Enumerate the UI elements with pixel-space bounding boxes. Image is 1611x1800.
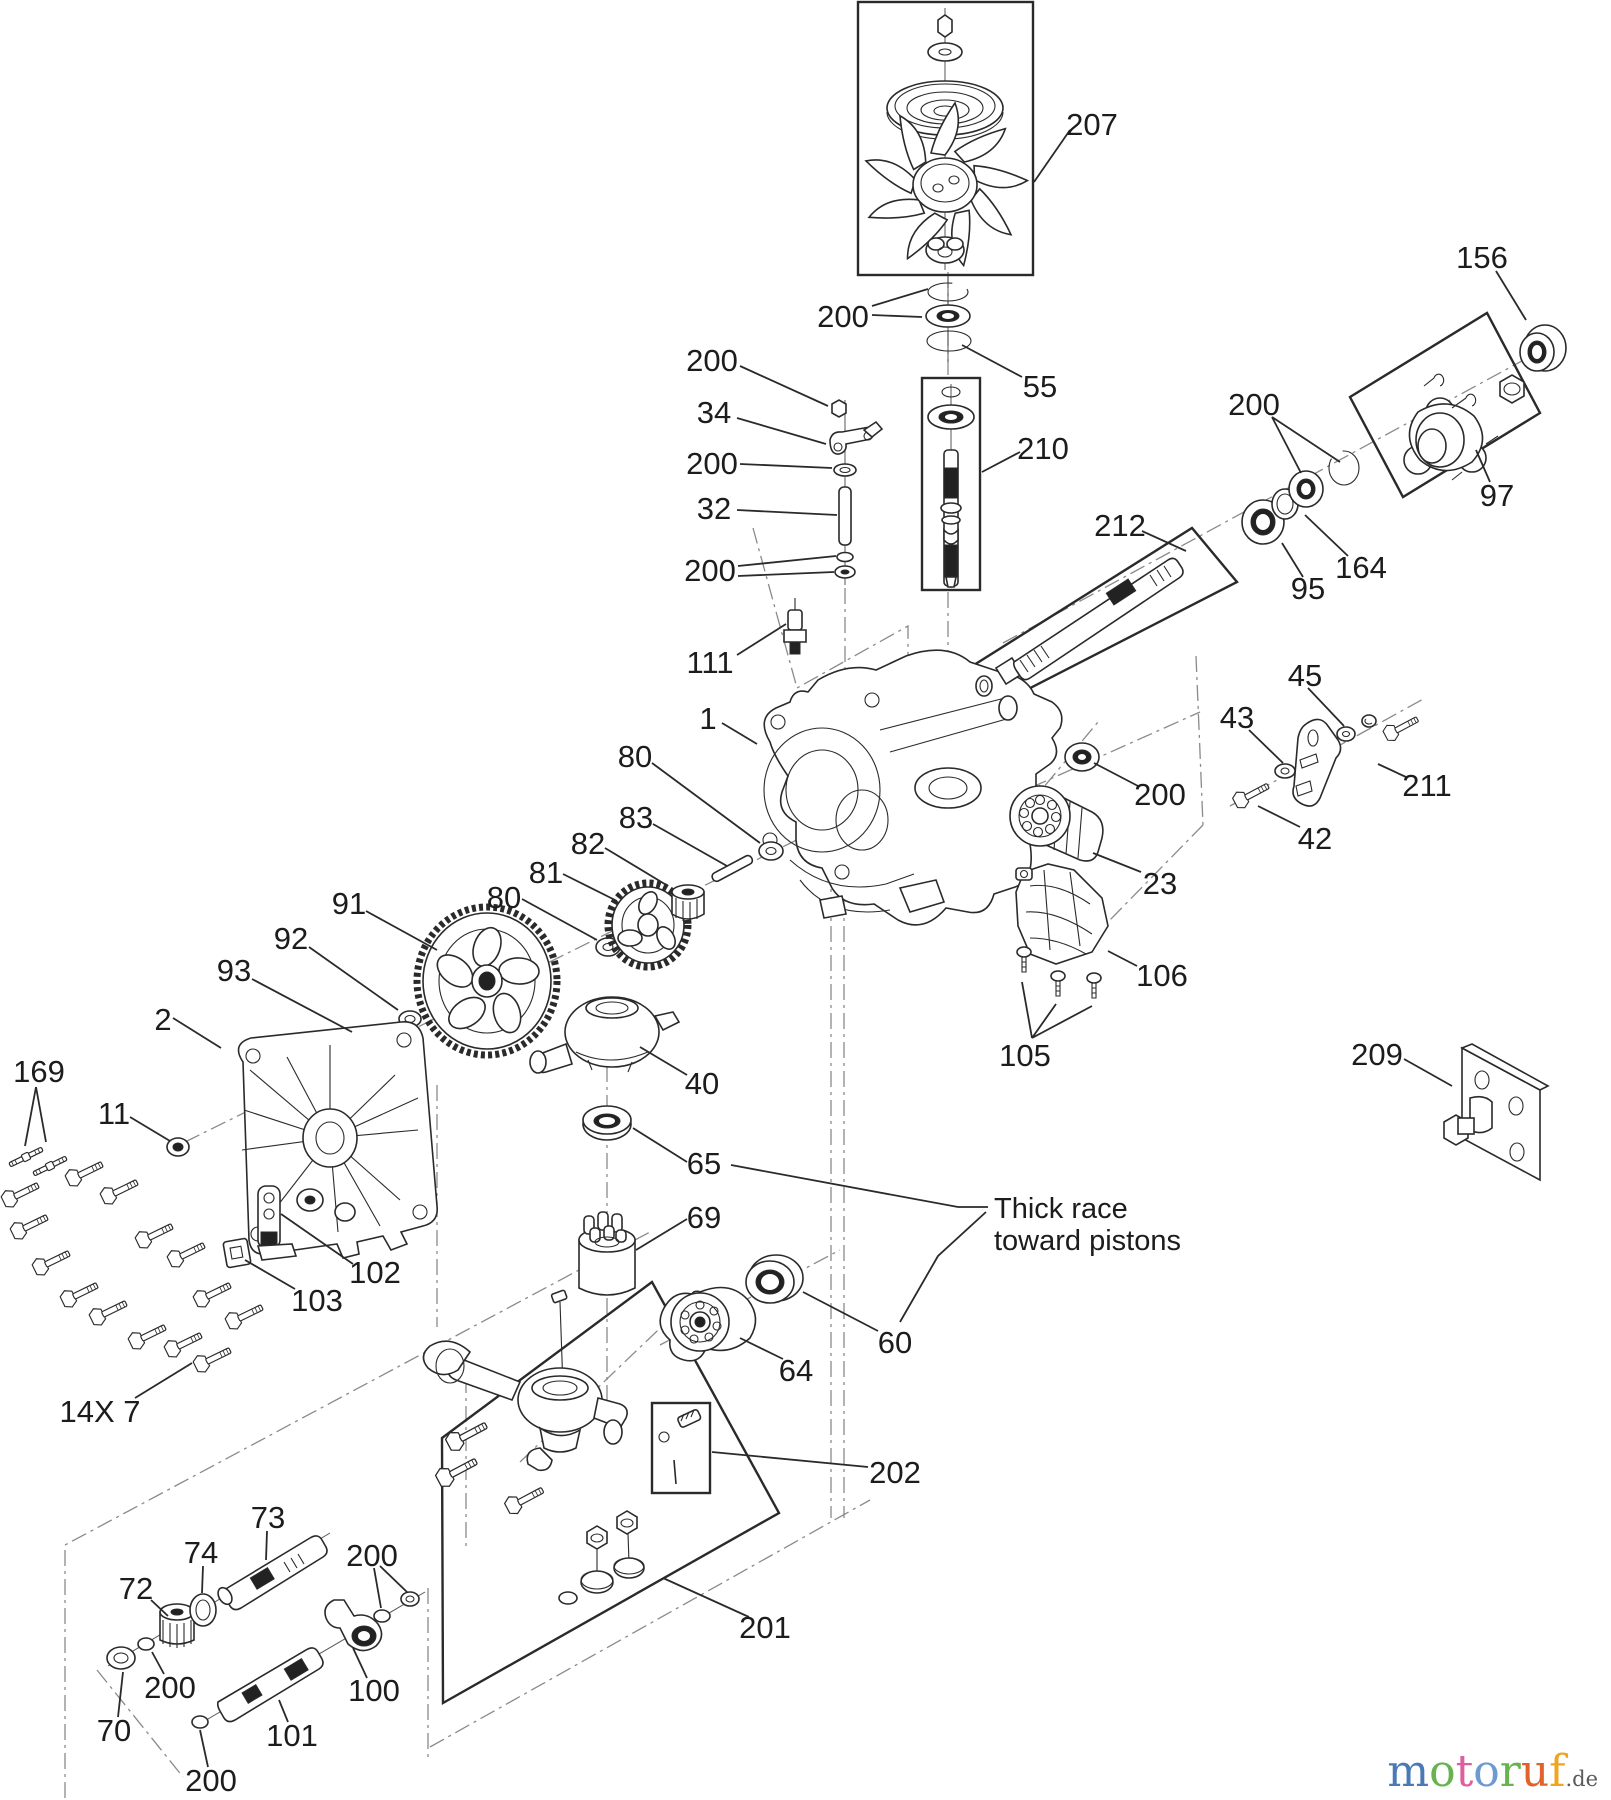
logo-letter: r — [1500, 1746, 1522, 1797]
callout-73: 73 — [251, 1500, 285, 1535]
shift-control-parts — [830, 400, 882, 578]
thrust-race-65 — [583, 1106, 631, 1140]
clip-103 — [223, 1238, 251, 1268]
pin-32 — [839, 487, 851, 545]
bearing-156 — [1520, 325, 1566, 371]
thick-race-60 — [746, 1255, 803, 1303]
callout-23: 23 — [1143, 866, 1177, 901]
callout-200-fan: 200 — [817, 299, 869, 334]
callout-93: 93 — [217, 953, 251, 988]
exploded-parts-diagram: 207 200 55 210 200 34 200 32 200 111 1 1… — [0, 0, 1611, 1800]
shift-fork-100 — [325, 1600, 382, 1651]
washer-80-right — [759, 842, 783, 860]
callout-200-seal: 200 — [1134, 777, 1186, 812]
callout-labels: 207 200 55 210 200 34 200 32 200 111 1 1… — [13, 107, 1514, 1798]
callout-80-upper: 80 — [618, 739, 652, 774]
washer-200-right — [401, 1592, 419, 1606]
pinion-82 — [672, 885, 704, 922]
brake-group — [1231, 711, 1421, 810]
callout-45: 45 — [1288, 658, 1322, 693]
bearing-200 — [1289, 471, 1323, 507]
fan-hub — [926, 237, 964, 263]
bolt-211 — [1381, 711, 1421, 743]
assembly-note: Thick race toward pistons — [994, 1193, 1181, 1257]
brake-plate-45 — [1293, 719, 1341, 806]
callout-2: 2 — [154, 1002, 171, 1037]
callout-40: 40 — [685, 1066, 719, 1101]
callout-200-left: 200 — [144, 1670, 196, 1705]
pump-nut — [614, 1511, 644, 1578]
callout-65: 65 — [687, 1146, 721, 1181]
motoruf-logo: motoruf.de — [1387, 1746, 1598, 1797]
small-nut — [832, 400, 846, 417]
o-ring-55 — [927, 331, 971, 351]
callout-101: 101 — [266, 1718, 318, 1753]
pump-shaft-73 — [215, 1536, 327, 1610]
washer-45 — [1337, 727, 1355, 741]
callout-200-bottom: 200 — [185, 1763, 237, 1798]
callout-105: 105 — [999, 1038, 1051, 1073]
plug-11 — [167, 1138, 189, 1156]
parts — [0, 15, 1566, 1728]
pump-nut-2 — [581, 1526, 613, 1593]
callout-209: 209 — [1351, 1037, 1403, 1072]
center-section-40 — [530, 997, 679, 1073]
washer — [834, 464, 856, 476]
callout-201: 201 — [739, 1610, 791, 1645]
callout-103: 103 — [291, 1283, 343, 1318]
callout-14x7: 14X 7 — [59, 1394, 140, 1429]
switch-111 — [784, 598, 806, 654]
callout-210: 210 — [1017, 431, 1069, 466]
callout-83: 83 — [619, 800, 653, 835]
note-line-2: toward pistons — [994, 1225, 1181, 1257]
callout-202: 202 — [869, 1455, 921, 1490]
callout-100: 100 — [348, 1673, 400, 1708]
bolt-42 — [1231, 778, 1272, 811]
callout-211: 211 — [1402, 768, 1451, 803]
callout-97: 97 — [1480, 478, 1514, 513]
washer-70 — [107, 1647, 135, 1669]
control-arm-34 — [830, 422, 882, 454]
logo-letter: u — [1521, 1746, 1549, 1797]
callout-200-washer: 200 — [686, 446, 738, 481]
logo-letter: t — [1456, 1746, 1474, 1797]
callout-200-washers: 200 — [346, 1538, 398, 1573]
callout-82: 82 — [571, 826, 605, 861]
callout-34: 34 — [697, 395, 731, 430]
callout-156: 156 — [1456, 240, 1508, 275]
gear-72 — [160, 1604, 194, 1648]
transaxle-housing-1 — [763, 650, 1062, 925]
logo-letter: o — [1429, 1746, 1456, 1797]
axle-bearing-group — [1242, 325, 1566, 544]
callout-11: 11 — [98, 1096, 130, 1131]
callout-69: 69 — [687, 1200, 721, 1235]
callout-207: 207 — [1066, 107, 1118, 142]
parts-diagram-page: 207 200 55 210 200 34 200 32 200 111 1 1… — [0, 0, 1611, 1800]
callout-164: 164 — [1335, 550, 1387, 585]
cylinder-rotor-64 — [660, 1288, 755, 1361]
final-gear-91 — [417, 907, 557, 1055]
callout-95: 95 — [1291, 571, 1325, 606]
washer-200-bottom — [192, 1716, 208, 1728]
studs-169 — [8, 1146, 68, 1178]
callout-74: 74 — [184, 1535, 218, 1570]
small-washer — [837, 553, 853, 562]
logo-letter: o — [1473, 1746, 1500, 1797]
screw — [1362, 715, 1376, 727]
valve-kit-202 — [659, 1409, 702, 1484]
pump-assembly-201 — [423, 1290, 644, 1604]
motor-shaft-101 — [218, 1648, 323, 1722]
callout-200-axle: 200 — [1228, 387, 1280, 422]
fan-nut — [938, 15, 952, 37]
washer-200-left — [138, 1638, 154, 1650]
callout-81: 81 — [529, 855, 563, 890]
callout-106: 106 — [1136, 958, 1188, 993]
callout-1: 1 — [699, 701, 716, 736]
callout-43: 43 — [1220, 700, 1254, 735]
axle-nut — [1500, 375, 1524, 403]
callout-72: 72 — [119, 1571, 153, 1606]
o-ring — [976, 676, 992, 696]
washer-74 — [190, 1594, 216, 1626]
callout-70: 70 — [97, 1713, 131, 1748]
idler-shaft-83 — [711, 854, 754, 883]
axle-seal-200 — [1065, 743, 1099, 771]
callout-92: 92 — [274, 921, 308, 956]
input-shaft-kit-210 — [928, 387, 974, 587]
washer-200-mid — [374, 1610, 390, 1622]
logo-letter: m — [1387, 1746, 1429, 1797]
callout-200-pin: 200 — [684, 553, 736, 588]
cover-bolts-14x7 — [0, 1156, 266, 1375]
cover-group — [0, 1011, 437, 1375]
callout-111: 111 — [686, 645, 733, 680]
piston-block-69 — [579, 1212, 635, 1295]
callout-102: 102 — [349, 1255, 401, 1290]
callout-60: 60 — [878, 1325, 912, 1360]
upper-bearing — [926, 305, 970, 327]
snap-ring-200 — [1329, 451, 1359, 485]
mount-plate-209 — [1444, 1044, 1548, 1180]
callout-169: 169 — [13, 1054, 65, 1089]
callout-42: 42 — [1298, 821, 1332, 856]
note-line-1: Thick race — [994, 1193, 1128, 1225]
construction-lines — [65, 8, 1553, 1798]
callout-55: 55 — [1023, 369, 1057, 404]
callout-80-lower: 80 — [487, 880, 521, 915]
cap — [559, 1592, 577, 1604]
callout-64: 64 — [779, 1353, 813, 1388]
logo-suffix: .de — [1565, 1767, 1598, 1791]
callout-32: 32 — [697, 491, 731, 526]
fan-washer — [928, 43, 962, 61]
washer-43 — [1275, 764, 1295, 778]
callout-91: 91 — [332, 886, 366, 921]
wheel-hub-97 — [1404, 374, 1498, 480]
callout-212: 212 — [1094, 508, 1146, 543]
callout-200-nut: 200 — [686, 343, 738, 378]
axle-shaft-212 — [976, 558, 1183, 696]
